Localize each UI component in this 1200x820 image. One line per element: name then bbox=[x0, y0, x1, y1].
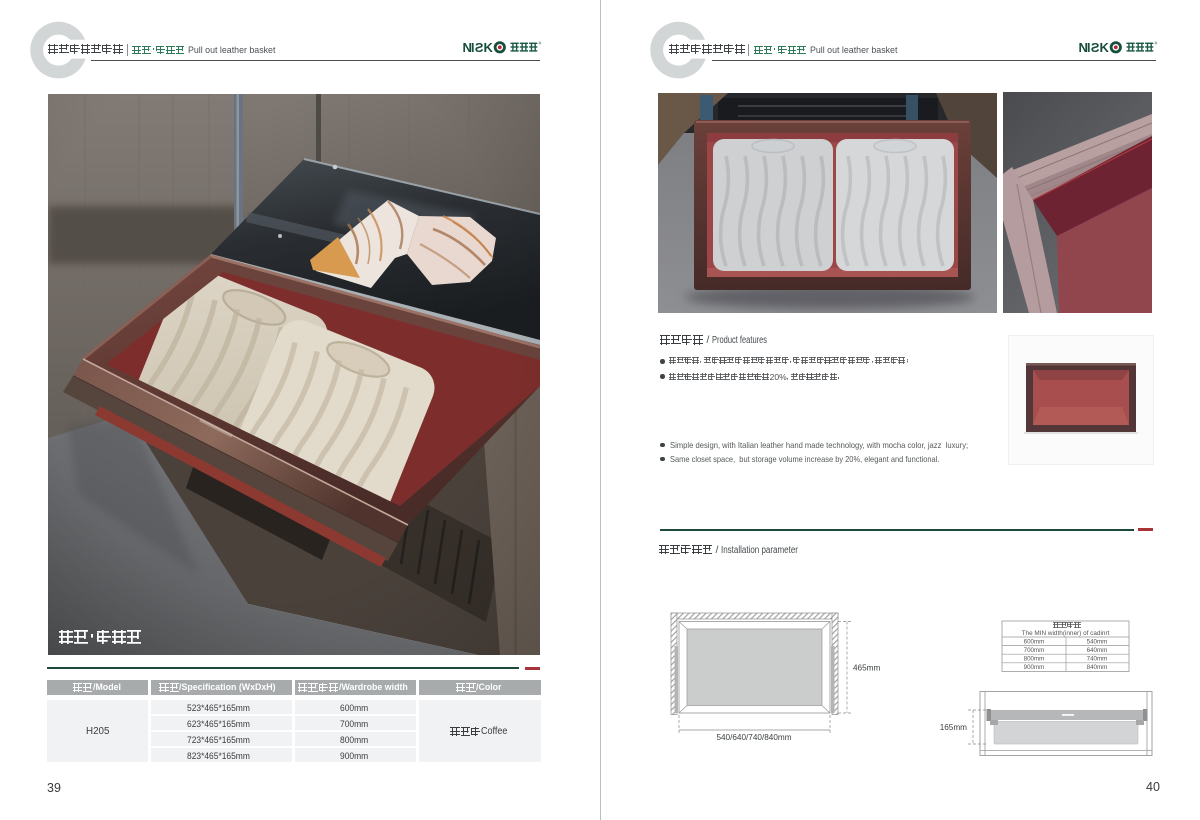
svg-text:900mm: 900mm bbox=[1024, 664, 1045, 671]
svg-text:NI: NI bbox=[463, 40, 474, 55]
svg-text:S: S bbox=[1091, 40, 1100, 55]
svg-text:800mm: 800mm bbox=[1024, 656, 1045, 663]
svg-text:640mm: 640mm bbox=[1087, 647, 1108, 654]
svg-text:540mm: 540mm bbox=[1087, 638, 1108, 645]
svg-text:540/640/740/840mm: 540/640/740/840mm bbox=[716, 733, 791, 742]
svg-text:600mm: 600mm bbox=[1024, 638, 1045, 645]
svg-text:NI: NI bbox=[1079, 40, 1090, 55]
svg-text:740mm: 740mm bbox=[1087, 656, 1108, 663]
svg-text:The MIN width(inner) of cadinr: The MIN width(inner) of cadinrt bbox=[1022, 630, 1110, 637]
svg-text:S: S bbox=[475, 40, 484, 55]
svg-text:700mm: 700mm bbox=[1024, 647, 1045, 654]
svg-text:840mm: 840mm bbox=[1087, 664, 1108, 671]
svg-text:465mm: 465mm bbox=[853, 664, 880, 673]
svg-text:K: K bbox=[484, 40, 494, 55]
svg-text:165mm: 165mm bbox=[940, 723, 967, 732]
svg-text:K: K bbox=[1100, 40, 1110, 55]
